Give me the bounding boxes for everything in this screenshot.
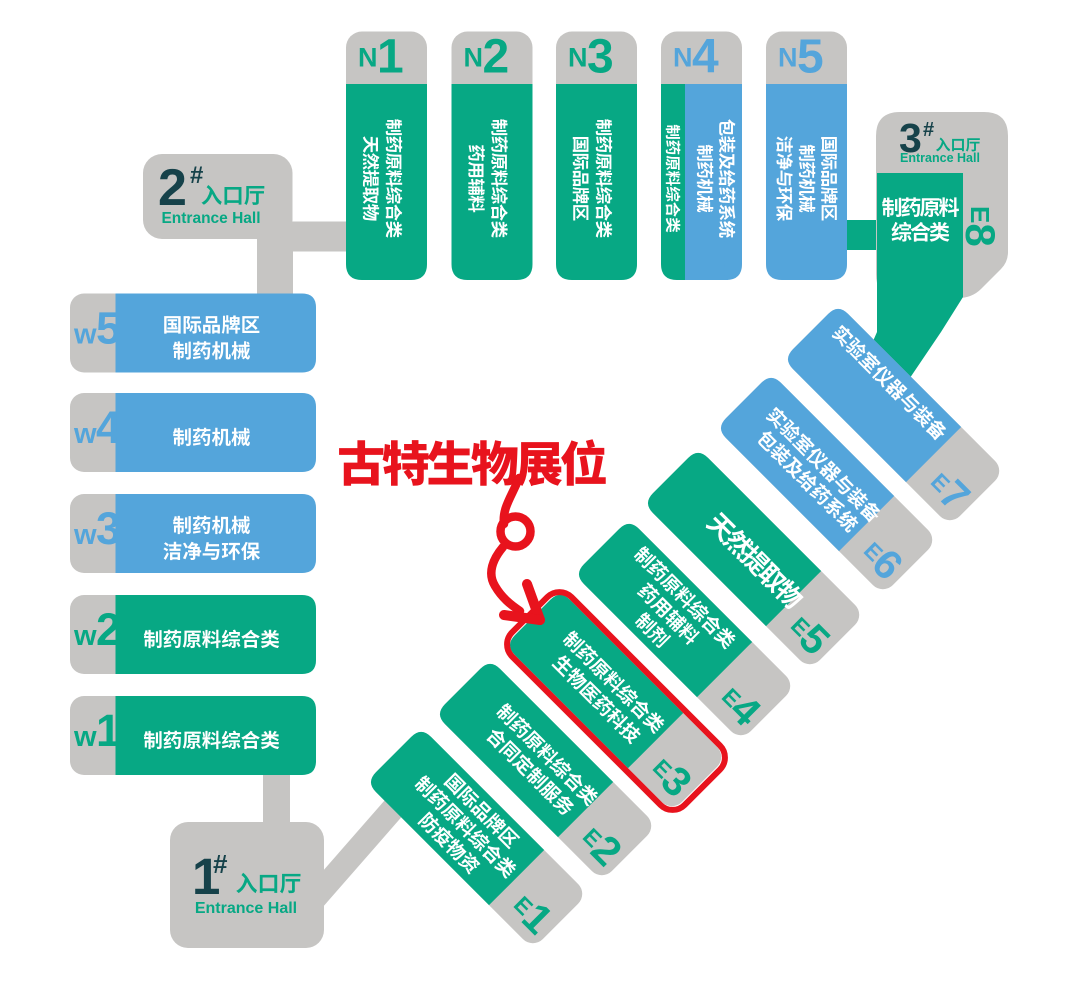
svg-text:#: # — [923, 119, 934, 141]
svg-text:Entrance Hall: Entrance Hall — [161, 210, 260, 227]
svg-text:3: 3 — [587, 31, 614, 84]
svg-text:N: N — [464, 43, 484, 73]
svg-text:N: N — [358, 43, 378, 73]
svg-text:N: N — [778, 43, 798, 73]
svg-text:1: 1 — [96, 705, 121, 756]
svg-text:4: 4 — [96, 402, 121, 453]
svg-text:3: 3 — [96, 503, 121, 554]
svg-text:w: w — [73, 319, 97, 351]
svg-text:#: # — [190, 162, 203, 189]
svg-text:4: 4 — [692, 31, 719, 84]
svg-text:1: 1 — [377, 31, 404, 84]
svg-text:w: w — [73, 721, 97, 753]
svg-text:#: # — [213, 849, 228, 879]
svg-text:N: N — [568, 43, 588, 73]
svg-text:w: w — [73, 418, 97, 450]
svg-text:5: 5 — [797, 31, 824, 84]
svg-text:w: w — [73, 519, 97, 551]
svg-text:Entrance Hall: Entrance Hall — [900, 151, 980, 165]
svg-text:Entrance Hall: Entrance Hall — [195, 900, 297, 917]
svg-text:2: 2 — [483, 31, 510, 84]
svg-text:N: N — [673, 43, 693, 73]
svg-text:w: w — [73, 620, 97, 652]
svg-text:2: 2 — [158, 159, 187, 217]
svg-text:5: 5 — [96, 303, 121, 354]
svg-text:2: 2 — [96, 604, 121, 655]
